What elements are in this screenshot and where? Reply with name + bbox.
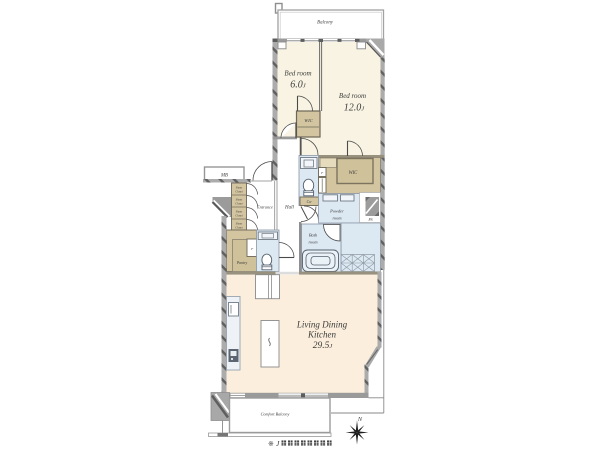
svg-text:Comfort Balcony: Comfort Balcony bbox=[261, 412, 290, 417]
svg-text:Closet: Closet bbox=[235, 227, 242, 230]
svg-text:Closet: Closet bbox=[235, 191, 242, 194]
svg-text:room: room bbox=[308, 240, 317, 245]
svg-text:29.5J: 29.5J bbox=[313, 341, 334, 351]
svg-text:Closet: Closet bbox=[235, 203, 242, 206]
svg-text:Shoes: Shoes bbox=[236, 199, 243, 202]
svg-text:Bed room: Bed room bbox=[284, 70, 311, 78]
svg-text:Pantry: Pantry bbox=[236, 261, 248, 265]
svg-text:Bed room: Bed room bbox=[339, 92, 366, 100]
svg-text:PS: PS bbox=[368, 218, 373, 222]
svg-text:WIC: WIC bbox=[304, 118, 313, 123]
svg-text:Closet: Closet bbox=[235, 215, 242, 218]
svg-text:Shoes: Shoes bbox=[236, 187, 243, 190]
svg-text:Shoes: Shoes bbox=[236, 211, 243, 214]
svg-text:Entrance: Entrance bbox=[256, 205, 273, 210]
svg-text:WIC: WIC bbox=[349, 171, 359, 176]
svg-text:Kitchen: Kitchen bbox=[307, 330, 336, 340]
svg-text:※: ※ bbox=[268, 441, 274, 448]
svg-text:room: room bbox=[332, 216, 341, 221]
svg-text:Living Dining: Living Dining bbox=[296, 320, 348, 330]
svg-text:J: J bbox=[276, 439, 280, 448]
svg-text:N: N bbox=[357, 416, 363, 423]
svg-text:Powder: Powder bbox=[329, 209, 344, 214]
svg-text:Cw: Cw bbox=[307, 200, 312, 204]
svg-text:Bath: Bath bbox=[309, 233, 318, 238]
svg-text:Shoes: Shoes bbox=[236, 223, 243, 226]
svg-text:Balcony: Balcony bbox=[317, 21, 334, 26]
svg-text:Hall: Hall bbox=[284, 206, 295, 211]
svg-text:MB: MB bbox=[220, 174, 228, 179]
